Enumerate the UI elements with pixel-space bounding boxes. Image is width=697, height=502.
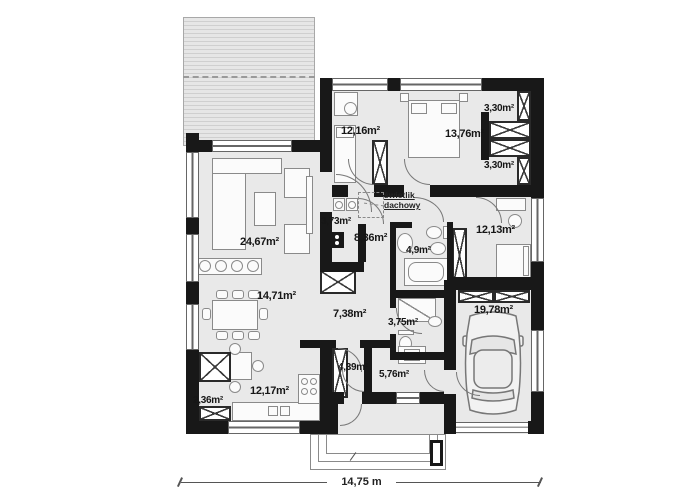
pillow	[523, 246, 529, 276]
room-label-kitchen: 12,17m²	[250, 385, 289, 397]
bathtub-basin	[408, 262, 444, 282]
wall	[452, 277, 531, 290]
window	[531, 198, 544, 262]
wall	[292, 140, 320, 152]
burner-icon	[310, 388, 317, 395]
wall	[390, 352, 452, 360]
wall	[199, 140, 212, 152]
floor-plan: świetlik dachowy 24,67m² 14,71m² 12,17m²…	[0, 0, 697, 502]
window	[332, 78, 388, 91]
wardrobe-xbox	[320, 270, 356, 294]
wardrobe-xbox	[517, 157, 531, 185]
wall	[320, 392, 344, 404]
window	[228, 421, 300, 434]
dimension-tick-icon	[537, 477, 543, 487]
chair	[216, 331, 228, 340]
wall	[444, 394, 456, 421]
wall	[420, 392, 444, 404]
garage-gate	[456, 422, 528, 433]
room-label-hallway: 8,36m²	[354, 232, 387, 244]
wall	[186, 218, 199, 234]
room-label-closet: 2,36m²	[193, 395, 223, 406]
porch-column	[430, 440, 443, 466]
wall	[531, 78, 544, 198]
wall	[186, 133, 199, 152]
room-label-wardrobe-upper: 3,30m²	[484, 103, 514, 114]
room-label-bedroom-right: 12,13m²	[476, 224, 515, 236]
wall	[531, 262, 544, 330]
wall	[362, 392, 396, 404]
window	[186, 152, 199, 218]
room-label-bedroom-top-mid: 13,76m²	[445, 128, 484, 140]
wardrobe-xbox	[517, 91, 531, 121]
skylight-note: świetlik dachowy	[384, 190, 420, 210]
kitchen-sink	[268, 406, 278, 416]
heater-dot-icon	[335, 235, 339, 239]
kitchen-sink	[280, 406, 290, 416]
terrace-door-window	[212, 140, 292, 152]
coffee-table	[254, 192, 276, 226]
heater-dot-icon	[335, 241, 339, 245]
wall	[326, 404, 338, 434]
burner-icon	[215, 260, 227, 272]
terrace-roof-edge-dashed	[183, 76, 315, 78]
wardrobe-xbox	[199, 406, 231, 421]
window	[186, 304, 199, 350]
wall	[388, 78, 400, 91]
wardrobe-xbox	[489, 121, 531, 139]
chair	[232, 290, 244, 299]
wall	[360, 340, 390, 348]
window	[186, 234, 199, 282]
chair	[216, 290, 228, 299]
bidet	[430, 242, 446, 255]
room-label-dining: 14,71m²	[257, 290, 296, 302]
stool	[252, 360, 264, 372]
room-label-bathroom: 4,9m²	[406, 245, 431, 256]
window	[396, 392, 420, 404]
wall	[300, 340, 336, 348]
terrace-hatched-area	[183, 17, 315, 146]
skylight-note-line2: dachowy	[384, 200, 420, 210]
dimension-text: 14,75 m	[327, 476, 396, 488]
tv-cabinet	[306, 176, 313, 234]
window	[400, 78, 482, 91]
window	[531, 330, 544, 392]
burner-icon	[301, 378, 308, 385]
stool	[229, 381, 241, 393]
wall	[390, 298, 396, 308]
room-label-wardrobe-lower: 3,30m²	[484, 160, 514, 171]
room-label-laundry: 3,73m²	[321, 216, 351, 227]
washbasin	[428, 316, 442, 327]
porch-step	[326, 434, 430, 454]
room-label-pantry: 4,39m²	[338, 362, 368, 373]
wardrobe-xbox	[372, 140, 388, 185]
wall	[320, 78, 332, 91]
storage-xbox	[494, 290, 530, 303]
wall	[396, 222, 412, 228]
wardrobe-xbox	[452, 228, 467, 283]
wall	[444, 421, 456, 434]
sofa-arm	[212, 158, 282, 174]
wall	[430, 185, 531, 197]
room-label-wc: 3,75m²	[388, 317, 418, 328]
dining-table	[212, 300, 258, 330]
chair	[259, 308, 268, 320]
wall	[320, 262, 364, 272]
wall	[528, 421, 544, 434]
pillow	[441, 103, 457, 114]
desk-chair	[344, 102, 357, 115]
room-label-living: 24,67m²	[240, 236, 279, 248]
wall	[186, 282, 199, 304]
wardrobe-xbox	[489, 139, 531, 157]
chair	[248, 331, 260, 340]
chair	[202, 308, 211, 320]
burner-icon	[301, 388, 308, 395]
skylight-note-line1: świetlik	[384, 190, 420, 200]
burner-icon	[199, 260, 211, 272]
burner-icon	[231, 260, 243, 272]
room-label-utility: 5,76m²	[379, 369, 409, 380]
dimension-line	[181, 482, 327, 483]
wall	[320, 91, 332, 172]
wall	[390, 222, 396, 290]
room-label-garage: 19,78m²	[474, 304, 513, 316]
wall	[444, 280, 456, 370]
wardrobe-xbox	[199, 352, 231, 382]
room-label-corridor: 7,38m²	[333, 308, 366, 320]
dresser	[496, 198, 526, 211]
toilet	[426, 226, 442, 239]
wall	[390, 290, 452, 298]
burner-icon	[247, 260, 259, 272]
chair	[232, 331, 244, 340]
dimension-line	[396, 482, 541, 483]
car-icon	[462, 306, 524, 420]
room-label-bedroom-top-left: 12,16m²	[341, 125, 380, 137]
wall	[390, 334, 396, 354]
storage-xbox	[458, 290, 494, 303]
pillow	[411, 103, 427, 114]
nightstand	[459, 93, 468, 102]
wall	[186, 350, 199, 434]
burner-icon	[310, 378, 317, 385]
